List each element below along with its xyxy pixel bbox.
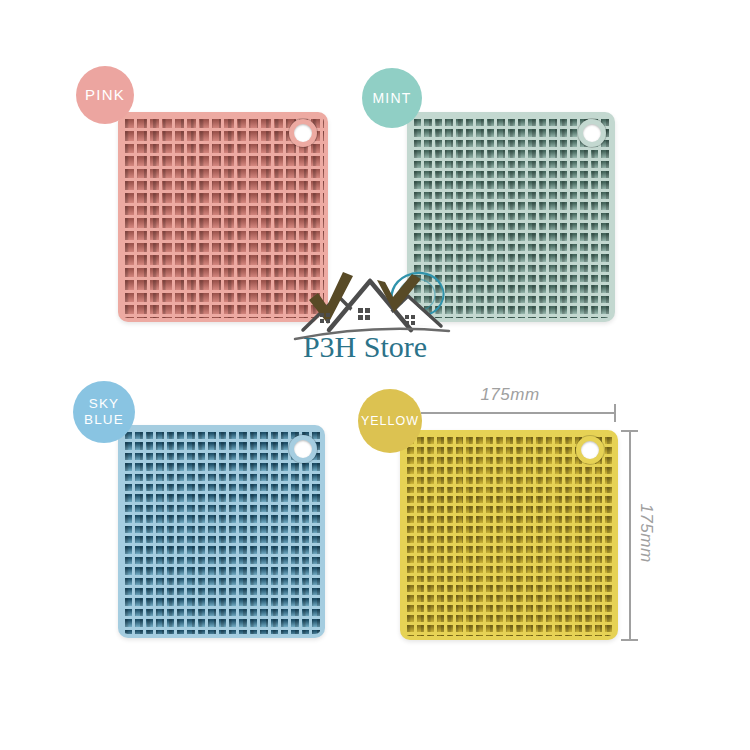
height-dimension-line [629,431,631,640]
color-badge-mint: MINT [362,68,422,128]
height-dimension-tick-top [621,430,638,432]
color-badge-pink: PINK [76,66,134,124]
color-badge-sky-blue: SKY BLUE [73,381,135,443]
color-badge-yellow: YELLOW [358,389,422,453]
color-badge-label: PINK [85,86,125,103]
trivet-mat-yellow [400,430,618,640]
color-badge-label: YELLOW [361,414,419,428]
hanging-hole [581,441,599,459]
store-name: P3H Store [295,330,435,364]
width-dimension-label: 175mm [455,385,565,405]
hanging-hole [294,124,312,142]
width-dimension-line [421,412,615,414]
product-photo: PINK MINT SKY BLUE YELLOW [0,0,750,750]
trivet-mat-sky-blue [118,425,325,638]
color-badge-label: MINT [372,90,411,106]
height-dimension-tick-bottom [621,639,638,641]
hanging-hole [583,124,601,142]
hanging-hole [294,440,312,458]
height-dimension-label: 175mm [636,478,656,588]
color-badge-label: SKY BLUE [81,396,127,427]
width-dimension-tick [614,404,616,422]
